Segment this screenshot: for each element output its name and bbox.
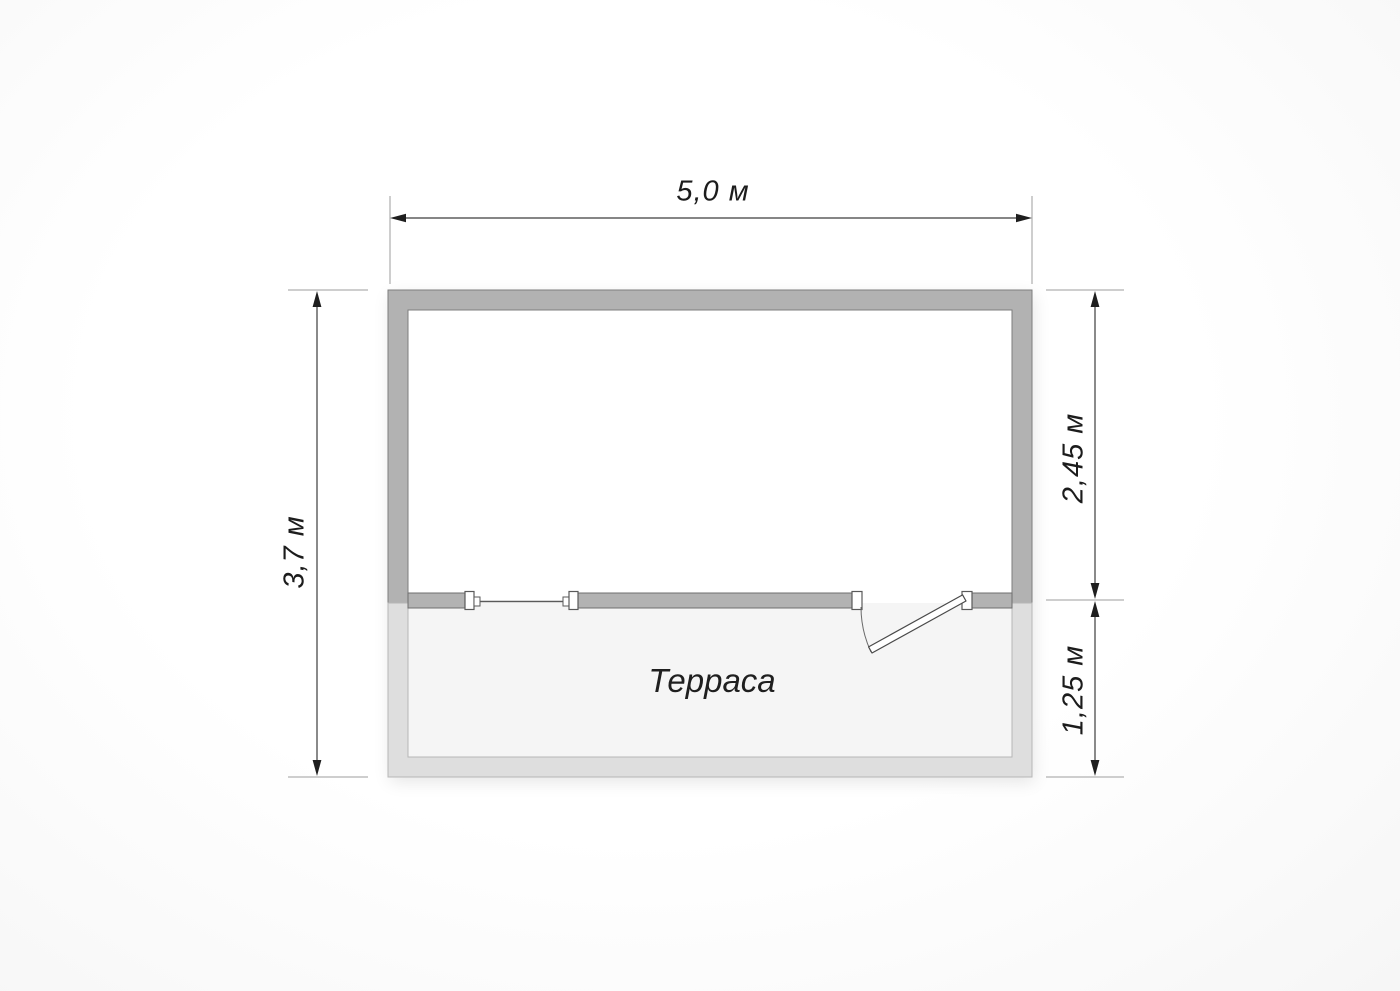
window-stop-left: [474, 597, 480, 606]
dim-height-label: 3,7 м: [279, 515, 312, 588]
dim-room-depth-label: 2,45 м: [1058, 413, 1091, 503]
dividing-wall-segment-left: [408, 593, 465, 608]
dim-terrace-depth-label: 1,25 м: [1058, 645, 1091, 735]
dim-width-label: 5,0 м: [676, 176, 749, 209]
door-jamb-left: [852, 592, 862, 610]
terrace-label: Терраса: [648, 662, 775, 700]
dividing-wall-segment-right: [972, 593, 1012, 608]
room-walls: [388, 290, 1032, 603]
dividing-wall-segment-middle: [578, 593, 852, 608]
floor-plan-drawing: [0, 0, 1400, 991]
floor-plan-viewport: 5,0 м 3,7 м 2,45 м 1,25 м Терраса: [0, 0, 1400, 991]
window-stop-right: [563, 597, 569, 606]
window-jamb-right: [569, 592, 578, 610]
window-jamb-left: [465, 592, 474, 610]
